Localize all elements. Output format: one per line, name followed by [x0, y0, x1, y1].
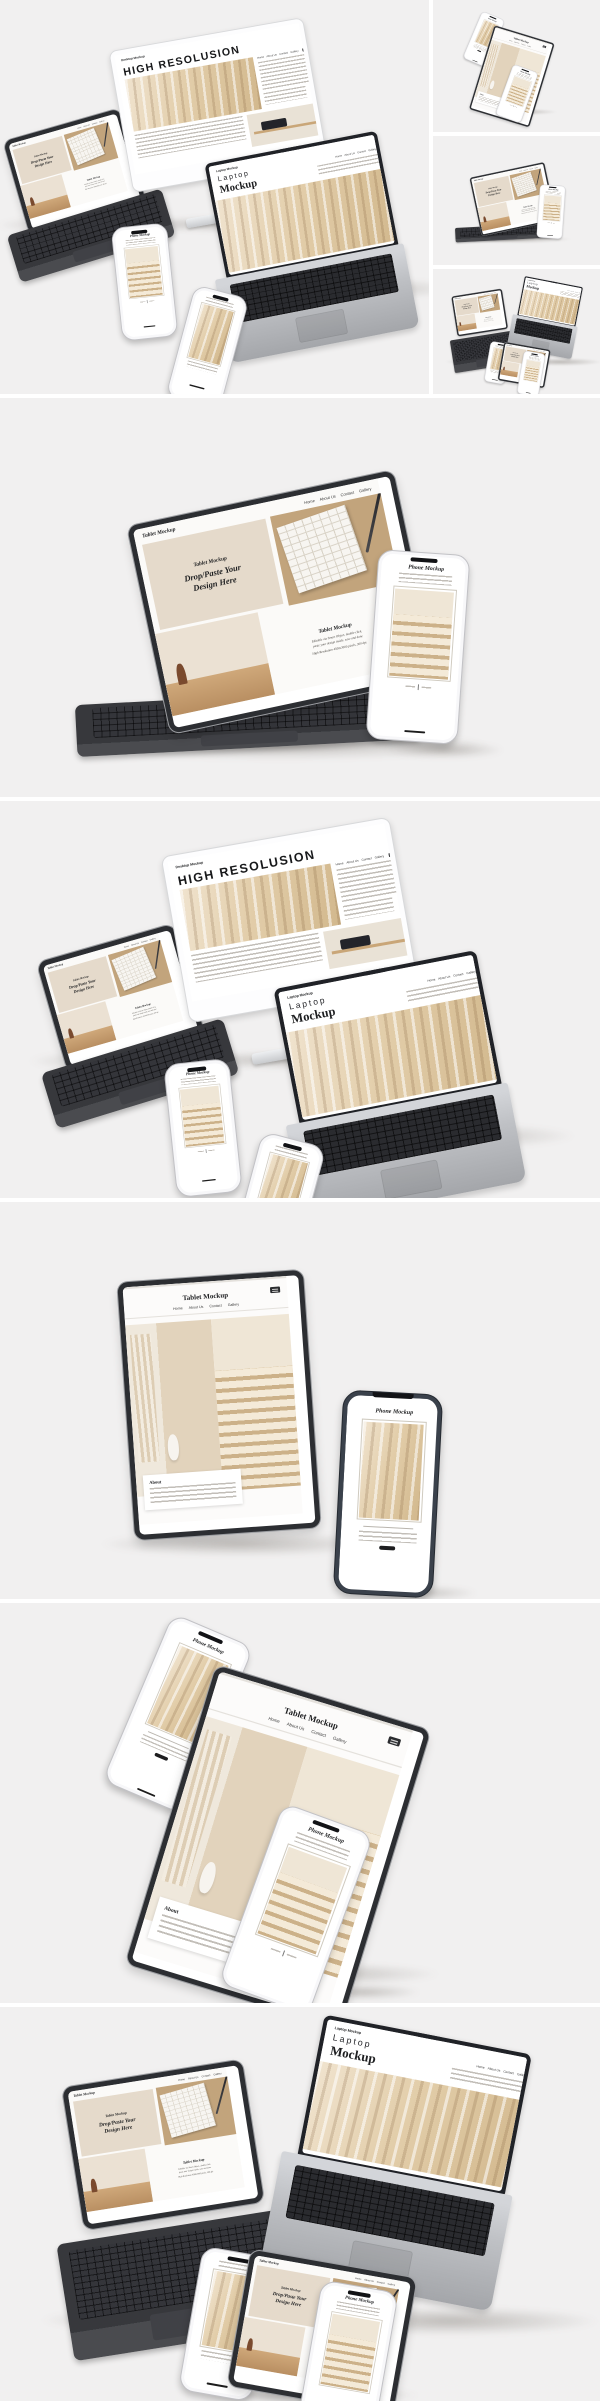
home-indicator-icon — [189, 384, 204, 389]
text-skeleton — [547, 222, 550, 223]
desk-photo — [456, 314, 477, 332]
divider — [363, 1526, 413, 1530]
preview-image-high-resolution[interactable]: Tablet MockupHomeAbout UsContactGallery … — [0, 801, 600, 1198]
nav-home: Home — [335, 154, 342, 159]
home-indicator-icon — [526, 392, 531, 393]
nav-gallery: Gallery — [358, 486, 371, 494]
trackpad — [380, 1159, 443, 1198]
scene-device-set-mini: Tablet MockupHomeAbout UsContactGallery … — [434, 274, 600, 384]
nav-about: About Us — [188, 2075, 199, 2080]
divider — [205, 1149, 206, 1153]
mockup-preview-gallery: Tablet Mockup HomeAbout UsContactGallery… — [0, 0, 600, 2401]
nav-home: Home — [178, 2077, 185, 2081]
text-skeleton — [510, 104, 513, 106]
preview-image-tablet-keyboard-phone-large[interactable]: Tablet MockupHomeAbout UsContactGallery … — [0, 398, 600, 797]
scene-portrait-pair: Tablet Mockup HomeAbout UsContactGallery… — [0, 1202, 600, 1599]
curtain-photo — [188, 304, 234, 366]
hero-title: Drop/Paste YourDesign Here — [98, 2116, 137, 2135]
phone-site: Phone Mockup — [370, 553, 466, 739]
shadow — [384, 742, 504, 758]
nav-contact: Contact — [521, 43, 525, 46]
curtain-photo — [359, 1421, 424, 1520]
photo-frame — [123, 244, 164, 299]
desk-photo — [477, 202, 511, 231]
nav-contact: Contact — [201, 2073, 210, 2078]
nav-about: About Us — [189, 1305, 204, 1310]
stairs-photo — [543, 195, 561, 221]
cta-chip-icon — [388, 852, 397, 857]
preview-image-device-set-large[interactable]: Tablet MockupHomeAbout UsContactGallery … — [0, 2007, 600, 2401]
preview-image-portrait-tablet-phone[interactable]: Tablet Mockup HomeAbout UsContactGallery… — [0, 1202, 600, 1599]
phone-site: Phone Mockup — [538, 185, 565, 237]
nav-about: About Us — [364, 2278, 374, 2283]
nav-contact: Contact — [453, 972, 464, 978]
desk-photo — [500, 361, 520, 378]
scene-floating-trio-mini: Phone Mockup Tablet Mockup HomeAbout UsC… — [434, 8, 600, 120]
menu-icon — [270, 1286, 280, 1293]
trackpad — [201, 730, 298, 746]
nav-contact: Contact — [311, 1729, 327, 1738]
home-indicator-icon — [137, 1788, 156, 1797]
collage-side-column: Phone Mockup Tablet Mockup HomeAbout UsC… — [433, 0, 600, 394]
trackpad — [295, 309, 349, 344]
text-skeleton — [359, 1531, 417, 1544]
phone-site: Phone Mockup — [168, 1062, 239, 1186]
stairs-photo — [389, 588, 454, 679]
nav-home: Home — [427, 977, 436, 982]
nav-about: About Us — [286, 1722, 305, 1732]
tablet-frame: Tablet MockupHomeAbout UsContactGallery … — [451, 289, 508, 337]
text-skeleton — [197, 1150, 203, 1153]
home-indicator-icon — [547, 235, 553, 236]
phone: Phone Mockup — [163, 1058, 243, 1198]
nav-about: About Us — [319, 493, 336, 501]
text-skeleton — [208, 1149, 214, 1152]
preview-image-device-set[interactable]: Tablet MockupHomeAbout UsContactGallery … — [433, 269, 600, 394]
stairs-photo — [524, 360, 541, 382]
preview-image-main-collage[interactable]: Tablet Mockup HomeAbout UsContactGallery… — [0, 0, 429, 394]
home-indicator-icon — [472, 60, 477, 63]
about-card: About — [143, 1469, 243, 1511]
photo-frame — [178, 1084, 226, 1149]
nav-gallery: Gallery — [213, 2071, 222, 2075]
stairs-photo — [258, 1846, 348, 1954]
nav-about: About Us — [266, 53, 277, 58]
phone-site — [172, 288, 245, 394]
home-indicator-icon — [207, 2382, 228, 2388]
nav-home: Home — [355, 2276, 362, 2280]
nav-gallery: Gallery — [579, 292, 582, 294]
nav-contact: Contact — [377, 2280, 386, 2284]
scene-device-set: Tablet MockupHomeAbout UsContactGallery … — [0, 2007, 600, 2401]
button-pill — [154, 1752, 168, 1761]
photo-frame — [252, 1151, 310, 1198]
nav-home: Home — [476, 2064, 485, 2070]
phone-site: Phone Mockup — [114, 226, 174, 332]
phone: Phone Mockup — [333, 1390, 444, 1599]
photo-frame — [387, 585, 457, 681]
hero-title: Drop/Paste YourDesign Here — [462, 305, 473, 310]
nav-gallery: Gallery — [290, 49, 299, 54]
text-skeleton — [421, 686, 431, 690]
nav-about: About Us — [346, 859, 359, 865]
text-skeleton — [149, 300, 154, 302]
nav-contact: Contact — [279, 51, 288, 56]
home-indicator-icon — [404, 730, 425, 733]
stairs-photo — [125, 246, 163, 298]
trackpad — [490, 235, 517, 240]
nav-gallery: Gallery — [527, 45, 531, 47]
phone — [165, 284, 249, 394]
hero-title: Drop/Paste YourDesign Here — [271, 2290, 307, 2308]
text-skeleton — [399, 573, 453, 586]
nav-gallery: Gallery — [387, 2282, 395, 2286]
photo-frame — [542, 194, 562, 221]
nav-contact: Contact — [141, 939, 148, 943]
nav-contact: Contact — [361, 856, 372, 862]
nav-home: Home — [509, 40, 513, 42]
photo-frame — [186, 302, 235, 367]
home-indicator-icon — [144, 325, 156, 327]
stairs-photo — [180, 1085, 225, 1146]
nav-home: Home — [123, 944, 129, 948]
nav-contact: Contact — [209, 1304, 222, 1309]
phone-site — [236, 1136, 322, 1198]
nav-contact: Contact — [340, 489, 355, 497]
nav-home: Home — [335, 861, 344, 866]
nav-gallery: Gallery — [332, 1736, 347, 1745]
stairs-photo — [211, 1314, 301, 1491]
calendar-photo — [156, 2077, 236, 2146]
text-skeleton — [405, 685, 415, 689]
text-skeleton — [140, 301, 145, 303]
tablet-portrait-site: Tablet Mockup HomeAbout UsContactGallery… — [123, 1276, 303, 1525]
cta-chip-icon — [302, 47, 309, 52]
nav-home: Home — [77, 126, 82, 129]
hero-title: Drop/Paste YourDesign Here — [510, 353, 520, 358]
collage-row: Tablet Mockup HomeAbout UsContactGallery… — [0, 0, 600, 394]
phone-title: Phone Mockup — [375, 1408, 413, 1416]
nav-about: About Us — [344, 151, 355, 156]
scene-floating-trio: Phone Mockup Tablet Mockup HomeAbout UsC… — [0, 1603, 600, 2003]
divider — [282, 1950, 285, 1956]
text-skeleton — [286, 1953, 296, 1959]
desk-photo — [236, 2317, 306, 2377]
tablet-site: Tablet MockupHomeAbout UsContactGallery … — [68, 2067, 245, 2212]
tablet-frame: Tablet MockupHomeAbout UsContactGallery … — [62, 2059, 264, 2230]
nav-contact: Contact — [357, 149, 366, 154]
text-skeleton — [552, 223, 555, 224]
nav-gallery: Gallery — [149, 937, 156, 941]
photo-frame — [318, 2311, 382, 2394]
text-skeleton — [336, 859, 403, 903]
nav-about: About Us — [487, 2066, 500, 2073]
tablet: Tablet Mockup HomeAbout UsContactGallery… — [117, 1270, 321, 1540]
preview-image-tablet-keyboard-phone[interactable]: Tablet MockupHomeAbout UsContactGallery … — [433, 136, 600, 265]
phone-title: Phone Mockup — [408, 565, 444, 573]
nav-contact: Contact — [503, 2069, 514, 2075]
phone-site: Phone Mockup — [338, 1395, 438, 1593]
text-skeleton — [514, 106, 517, 108]
nav-gallery: Gallery — [466, 970, 476, 976]
scene-tablet-keyboard-mini: Tablet MockupHomeAbout UsContactGallery … — [434, 142, 600, 254]
curtain-photo — [254, 1153, 308, 1198]
stairs-photo — [506, 76, 531, 106]
home-indicator-icon — [374, 1590, 396, 1593]
nav-home: Home — [268, 1716, 281, 1724]
scene-tablet-keyboard: Tablet MockupHomeAbout UsContactGallery … — [0, 398, 600, 797]
nav-gallery: Gallery — [228, 1302, 240, 1307]
hero-title: Drop/Paste YourDesign Here — [183, 562, 244, 595]
nav-home: Home — [304, 498, 315, 505]
preview-image-floating-trio-large[interactable]: Phone Mockup Tablet Mockup HomeAbout UsC… — [0, 1603, 600, 2003]
tablet-site: Tablet MockupHomeAbout UsContactGallery … — [453, 291, 503, 332]
calendar-photo — [478, 293, 501, 312]
home-indicator-icon — [492, 379, 498, 381]
photo-frame — [523, 359, 541, 382]
divider — [417, 684, 418, 690]
nav-gallery: Gallery — [374, 854, 384, 860]
divider — [147, 300, 148, 303]
phone: Phone Mockup — [111, 222, 179, 341]
phone: Phone Mockup — [536, 184, 565, 239]
home-indicator-icon — [202, 1179, 216, 1182]
text-skeleton — [150, 1482, 237, 1504]
nav-home: Home — [257, 55, 264, 60]
scene-high-resolution: Tablet MockupHomeAbout UsContactGallery … — [0, 801, 600, 1198]
stairs-photo — [320, 2313, 380, 2392]
phone: Phone Mockup — [365, 549, 470, 745]
text-skeleton — [258, 53, 315, 91]
preview-image-floating-trio[interactable]: Phone Mockup Tablet Mockup HomeAbout UsC… — [433, 0, 600, 132]
nav-gallery: Gallery — [517, 2072, 528, 2078]
desk-photo — [78, 2148, 153, 2212]
photo-frame — [356, 1419, 426, 1523]
nav-gallery: Gallery — [368, 147, 377, 152]
text-skeleton — [270, 1947, 280, 1953]
nav-about: About Us — [438, 974, 451, 980]
scene-high-resolution-mini: Tablet Mockup HomeAbout UsContactGallery… — [0, 4, 429, 341]
button-pill — [379, 1546, 395, 1551]
nav-home: Home — [173, 1306, 183, 1311]
nav-about: About Us — [514, 41, 519, 44]
feature-text: High Resolution 4500x3000 pixels, 300 dp… — [484, 320, 494, 322]
